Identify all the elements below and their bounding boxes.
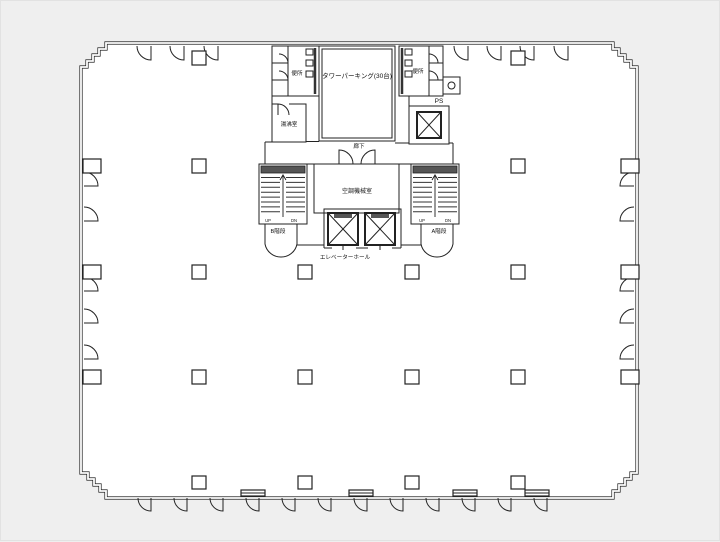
label-stair-b: B階段 (271, 227, 286, 235)
label-hot-water-room: 湯沸室 (281, 120, 298, 128)
door-swing (534, 498, 547, 511)
column (298, 476, 312, 489)
label-corridor: 廊下 (353, 142, 365, 150)
column (83, 159, 101, 173)
elevator-door (334, 214, 352, 218)
label-stair-up: UP (419, 218, 425, 223)
door-swing (318, 498, 331, 511)
column (298, 265, 312, 279)
label-tower-parking: タワーパーキング(30台) (322, 71, 392, 80)
label-stair-a: A階段 (432, 227, 447, 235)
label-pipe-shaft: PS (435, 98, 444, 105)
door-swing (210, 498, 223, 511)
column (511, 265, 525, 279)
column (192, 159, 206, 173)
column (511, 370, 525, 384)
elevator-door (371, 214, 389, 218)
door-swing (246, 498, 259, 511)
column (298, 370, 312, 384)
column (511, 51, 525, 65)
column (83, 370, 101, 384)
label-elevator-hall: エレベーターホール (320, 253, 371, 261)
column (621, 159, 639, 173)
label-stair-dn: DN (445, 218, 451, 223)
door-swing (498, 498, 511, 511)
column (83, 265, 101, 279)
stair-hatch (261, 166, 305, 173)
column (192, 265, 206, 279)
door-swing (174, 498, 187, 511)
column (621, 370, 639, 384)
floor-plan-drawing: 便所 湯沸室 タワーパーキング(30台) 便 (1, 1, 720, 542)
door-swing (282, 498, 295, 511)
label-stair-up: UP (265, 218, 271, 223)
column (405, 265, 419, 279)
label-stair-dn: DN (291, 218, 297, 223)
column (405, 476, 419, 489)
column (511, 476, 525, 489)
column (511, 159, 525, 173)
door-swing (390, 498, 403, 511)
column (621, 265, 639, 279)
outer-wall (81, 43, 637, 498)
outer-wall-outline (81, 43, 637, 498)
label-ac-machine-room: 空調機械室 (342, 187, 372, 195)
door-swing (354, 498, 367, 511)
door-swing (138, 498, 151, 511)
column (405, 370, 419, 384)
door-swing (426, 498, 439, 511)
column (192, 370, 206, 384)
stair-hatch (413, 166, 457, 173)
label-toilet-right: 便所 (412, 67, 424, 75)
door-swing (462, 498, 475, 511)
column (192, 476, 206, 489)
label-toilet-left: 便所 (291, 69, 303, 77)
floor-plan-image: 便所 湯沸室 タワーパーキング(30台) 便 (0, 0, 720, 541)
column (192, 51, 206, 65)
